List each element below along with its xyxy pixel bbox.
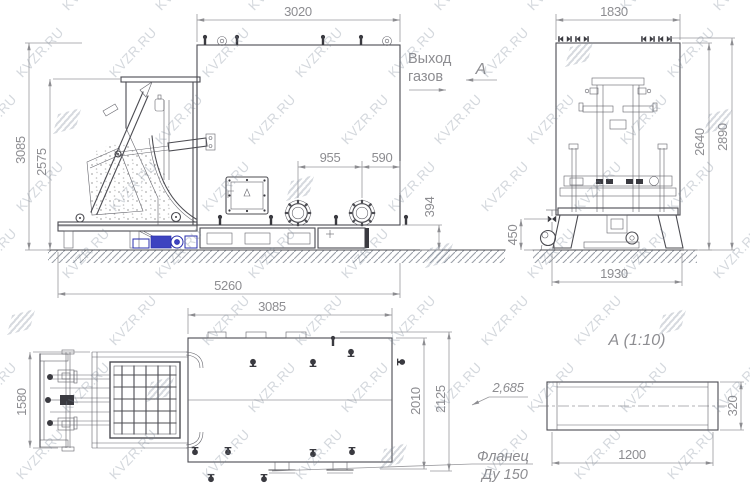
skip-loader <box>76 77 215 225</box>
dim-front-port-spacing: 955 <box>320 150 341 165</box>
stud-bolt-icon <box>349 447 356 455</box>
lifting-lug-icon <box>218 37 392 46</box>
dim-side-overall-height: 2890 <box>715 123 730 151</box>
dim-front-base-height: 394 <box>422 197 437 218</box>
stud-bolt-icon <box>310 359 317 367</box>
side-dimensions: 1830 450 2640 2890 1930 <box>505 4 735 286</box>
top-valve-icon <box>575 36 589 42</box>
flange-label-2: Ду 150 <box>480 467 528 483</box>
sight-glass-icon <box>155 99 164 111</box>
blower-fan <box>541 210 559 250</box>
stud-bolt-icon <box>192 447 199 455</box>
flange-label-1: Фланец <box>477 449 529 465</box>
gas-outlet-text-2: газов <box>408 69 443 85</box>
stud-bolt-icon <box>397 359 405 366</box>
ground-hatch <box>48 250 505 263</box>
stud-bolt-icon <box>261 474 268 482</box>
flange-duct <box>538 382 727 430</box>
detail-dimensions: 1200 320 <box>552 382 744 466</box>
furnace-body <box>197 35 400 225</box>
dim-detail-length: 1200 <box>618 447 646 462</box>
top-valve-icon <box>658 36 672 42</box>
access-door <box>226 177 268 214</box>
stud-bolt-icon <box>310 449 317 457</box>
plan-view: 3085 1580 2010 2125 2,685 Фланец Ду 150 <box>14 299 533 483</box>
dim-plan-overall-depth: 2125 <box>433 385 448 413</box>
motor-drive-assembly <box>133 236 198 250</box>
drawing-canvas: 3020 3085 2575 955 590 394 5260 Выход га… <box>0 0 750 500</box>
stud-bolt-icon <box>348 349 355 357</box>
pusher-assembly <box>40 350 203 451</box>
front-view: 3020 3085 2575 955 590 394 5260 Выход га… <box>13 4 505 298</box>
bottom-flange-stubs <box>269 462 353 473</box>
dim-front-overall-height: 3085 <box>13 136 28 164</box>
side-base <box>553 208 683 248</box>
view-arrow-label: А <box>475 61 487 78</box>
dim-plan-loader-width: 1580 <box>14 388 29 416</box>
dim-plan-body-depth: 2010 <box>408 387 423 415</box>
dim-front-overall-length: 5260 <box>214 278 242 293</box>
stud-bolt-icon <box>225 447 232 455</box>
flanged-port <box>285 200 311 226</box>
dim-plan-body-length: 3085 <box>258 299 286 314</box>
engineering-drawing: 3020 3085 2575 955 590 394 5260 Выход га… <box>0 0 750 500</box>
dim-side-body-width: 1830 <box>600 4 628 19</box>
detail-view: А (1:10) 1200 320 <box>538 332 744 466</box>
dim-side-fan-height: 450 <box>505 225 520 246</box>
dim-side-height-to-top: 2640 <box>692 128 707 156</box>
mass-label: 2,685 <box>491 380 524 395</box>
top-valve-icon <box>558 36 572 42</box>
stud-bolt-icon <box>208 474 215 482</box>
dim-front-body-width: 3020 <box>284 4 312 19</box>
gas-outlet-label: Выход газов <box>408 51 452 90</box>
stud-bolt-icon <box>250 359 257 367</box>
side-view: 1830 450 2640 2890 1930 <box>505 4 735 286</box>
top-valve-icon <box>641 36 655 42</box>
flanged-port <box>349 200 375 226</box>
ground-hatch-side <box>533 250 697 263</box>
detail-title: А (1:10) <box>608 332 666 349</box>
plan-dimensions: 3085 1580 2010 2125 <box>14 299 452 471</box>
mass-marker: 2,685 <box>472 380 528 405</box>
gas-outlet-text-1: Выход <box>408 51 452 67</box>
dim-front-port-to-edge: 590 <box>372 150 393 165</box>
dim-front-loader-height: 2575 <box>34 148 49 176</box>
view-direction-marker: А <box>466 61 497 80</box>
dim-side-base-width: 1930 <box>600 266 628 281</box>
dim-detail-height: 320 <box>725 396 740 417</box>
inner-mechanism <box>560 78 676 212</box>
